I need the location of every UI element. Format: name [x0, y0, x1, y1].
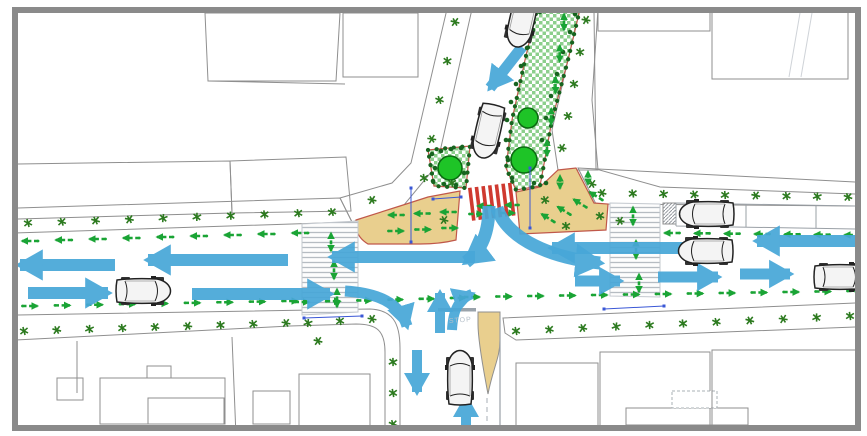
shrub-icon — [431, 179, 436, 184]
car — [680, 199, 735, 229]
shrub-icon — [449, 147, 454, 152]
plan-canvas: STOP — [0, 0, 867, 436]
pedestrian-arrow-dot — [441, 227, 444, 230]
pedestrian-arrow-dot — [559, 294, 562, 297]
dimension-tick — [603, 308, 606, 311]
pedestrian-arrow-dot — [591, 294, 594, 297]
pedestrian-arrow-dot — [239, 234, 242, 237]
pedestrian-arrow-dot — [428, 212, 431, 215]
dimension-tick — [460, 196, 463, 199]
pedestrian-arrow-dot — [517, 204, 520, 207]
car — [445, 351, 475, 406]
pedestrian-arrow-dot — [307, 232, 310, 235]
pedestrian-arrow-dot — [205, 235, 208, 238]
dimension-tick — [410, 187, 413, 190]
dimension-tick — [663, 305, 666, 308]
pedestrian-arrow-dot — [814, 290, 817, 293]
se-dashed-structure — [672, 391, 717, 408]
pedestrian-arrow-dot — [687, 292, 690, 295]
pedestrian-arrow-dot — [172, 236, 175, 239]
car — [116, 276, 171, 306]
shrub-icon — [505, 118, 510, 123]
shrub-icon — [561, 50, 566, 55]
pedestrian-arrow-dot — [54, 304, 57, 307]
pedestrian-arrow-dot — [70, 239, 73, 242]
shrub-icon — [506, 158, 511, 163]
dimension-tick — [410, 241, 413, 244]
pedestrian-arrow-dot — [216, 301, 219, 304]
dimension-tick — [432, 198, 435, 201]
shrub-icon — [549, 94, 554, 99]
pedestrian-arrow-dot — [623, 293, 626, 296]
dimension-tick — [361, 315, 364, 318]
pedestrian-arrow-dot — [569, 213, 572, 216]
shrub-icon — [532, 181, 537, 186]
pedestrian-arrow-dot — [553, 221, 556, 224]
pedestrian-arrow-dot — [402, 214, 405, 217]
shrub-icon — [462, 171, 467, 176]
shrub-icon — [544, 181, 549, 186]
pedestrian-arrow-dot — [138, 237, 141, 240]
pedestrian-arrow-dot — [846, 290, 849, 293]
pedestrian-arrow-dot — [450, 297, 453, 300]
shrub-icon — [544, 116, 549, 121]
shrub-icon — [525, 46, 530, 51]
tree-icon — [518, 108, 538, 128]
pedestrian-arrow-dot — [678, 232, 681, 235]
pedestrian-arrow-dot — [601, 199, 604, 202]
pedestrian-arrow-dot — [782, 291, 785, 294]
pedestrian-arrow-dot — [585, 206, 588, 209]
tree-icon — [438, 156, 462, 180]
pedestrian-arrow-dot — [718, 292, 721, 295]
pedestrian-arrow-dot — [21, 305, 24, 308]
pedestrian-arrow-dot — [655, 293, 658, 296]
pedestrian-arrow-dot — [527, 295, 530, 298]
pedestrian-arrow-dot — [738, 232, 741, 235]
car — [679, 236, 734, 266]
pedestrian-arrow-dot — [708, 232, 711, 235]
pedestrian-arrow-dot — [273, 233, 276, 236]
pedestrian-arrow-dot — [104, 238, 107, 241]
shrub-icon — [510, 176, 515, 181]
pedestrian-arrow-dot — [454, 211, 457, 214]
shrub-icon — [454, 183, 459, 188]
shrub-icon — [568, 30, 573, 35]
pedestrian-arrow-dot — [184, 301, 187, 304]
pedestrian-arrow-dot — [37, 240, 40, 243]
shrub-icon — [519, 64, 524, 69]
pedestrian-arrow-dot — [249, 300, 252, 303]
shrub-icon — [433, 166, 438, 171]
pedestrian-arrow-dot — [325, 300, 328, 303]
shrub-icon — [555, 72, 560, 77]
shrub-icon — [514, 82, 519, 87]
tree-icon — [511, 147, 537, 173]
pedestrian-arrow-dot — [414, 228, 417, 231]
shrub-icon — [504, 138, 509, 143]
shrub-icon — [439, 149, 444, 154]
pedestrian-arrow-dot — [495, 295, 498, 298]
pedestrian-arrow-dot — [387, 230, 390, 233]
pedestrian-arrow-dot — [468, 213, 471, 216]
traffic-plan-drawing: STOP — [0, 0, 867, 436]
dimension-tick — [529, 167, 532, 170]
kerb-buildout-hatch — [663, 203, 676, 224]
pedestrian-arrow-dot — [86, 303, 89, 306]
shrub-icon — [430, 152, 435, 157]
dimension-tick — [529, 227, 532, 230]
shrub-icon — [540, 138, 545, 143]
pedestrian-arrow-dot — [356, 299, 359, 302]
pedestrian-arrow-dot — [294, 301, 297, 304]
pedestrian-arrow-dot — [418, 297, 421, 300]
shrub-icon — [442, 182, 447, 187]
dimension-tick — [303, 317, 306, 320]
shrub-icon — [459, 146, 464, 151]
pedestrian-arrow-dot — [768, 233, 771, 236]
pedestrian-arrow-dot — [750, 291, 753, 294]
pedestrian-arrow-dot — [281, 300, 284, 303]
shrub-icon — [509, 100, 514, 105]
